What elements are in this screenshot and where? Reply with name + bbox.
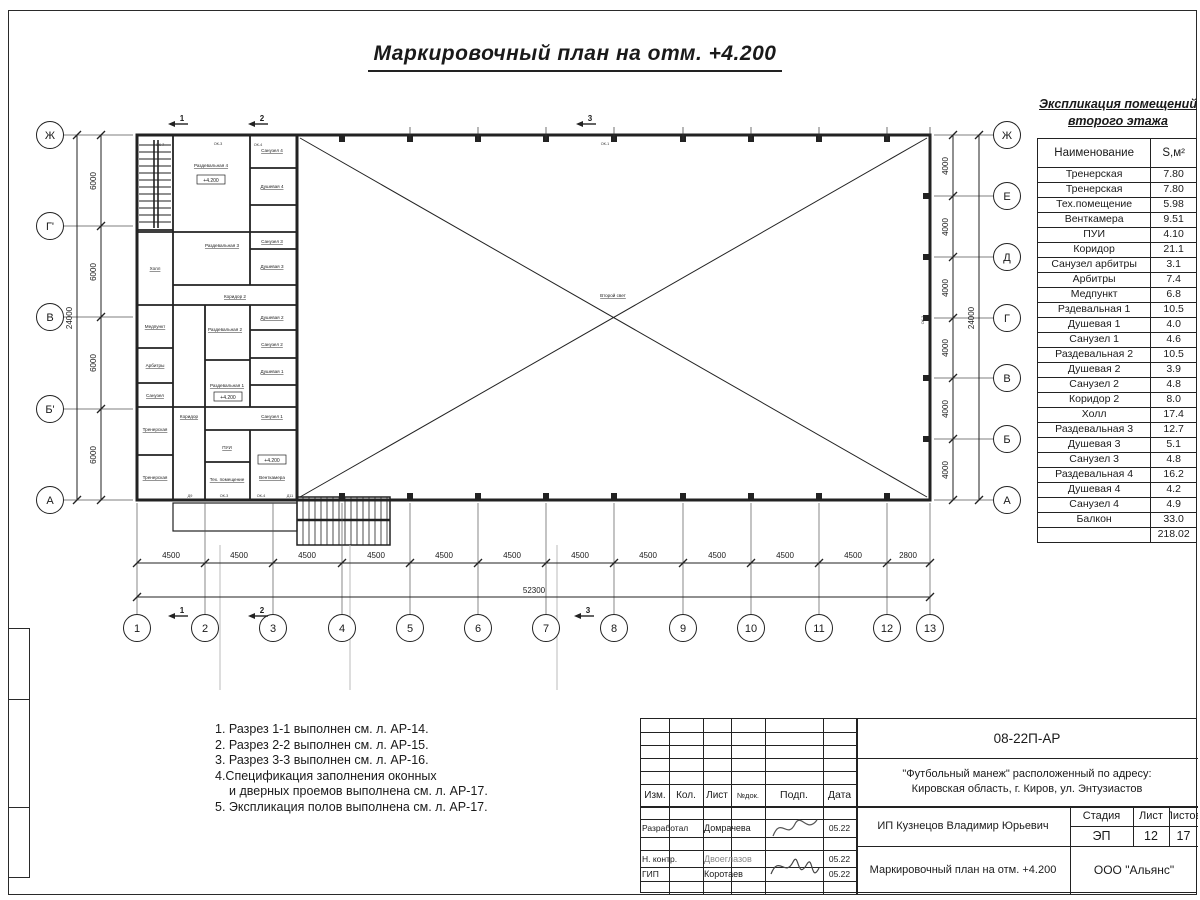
svg-text:4000: 4000 [941, 157, 950, 175]
room-label: Венткамера [259, 475, 285, 480]
svg-text:4500: 4500 [776, 551, 794, 560]
table-row: Балкон33.0 [1038, 512, 1197, 527]
room-label: Санузел 1 [261, 414, 283, 419]
svg-text:24000: 24000 [65, 306, 74, 329]
room-label: Душевая 2 [260, 315, 283, 320]
svg-text:12: 12 [881, 623, 893, 635]
svg-text:7: 7 [543, 623, 549, 635]
drawing-name: Маркировочный план на отм. +4.200 [856, 846, 1070, 894]
notes: 1. Разрез 1-1 выполнен см. л. АР-14. 2. … [215, 722, 488, 815]
stage-label: Стадия [1070, 806, 1133, 826]
room-label: Санузел 2 [261, 342, 283, 347]
svg-text:8: 8 [611, 623, 617, 635]
svg-text:Ж: Ж [1002, 130, 1012, 142]
svg-text:Г': Г' [46, 221, 54, 233]
col-kol: Кол. [669, 784, 703, 806]
svg-text:Б: Б [1003, 434, 1010, 446]
svg-text:4000: 4000 [941, 279, 950, 297]
room-label: Медпункт [145, 324, 166, 329]
svg-text:4000: 4000 [941, 218, 950, 236]
room-label: Тренерская [143, 475, 168, 480]
svg-text:6000: 6000 [89, 446, 98, 464]
stairwell [139, 140, 171, 228]
room-label: Коридор [180, 414, 199, 419]
title-block: Изм. Кол. Лист №док. Подп. Дата Разработ… [640, 718, 1197, 893]
svg-text:2: 2 [260, 606, 265, 615]
svg-text:3: 3 [586, 606, 591, 615]
note-line: 3. Разрез 3-3 выполнен см. л. АР-16. [215, 753, 488, 769]
svg-text:+4.200: +4.200 [220, 395, 236, 401]
room-label: Холл [150, 266, 161, 271]
svg-text:2800: 2800 [899, 551, 917, 560]
axis-circles-right: Ж Е Д Г В Б А [994, 122, 1021, 514]
table-row: Холл17.4 [1038, 407, 1197, 422]
room-label: Душевая 1 [260, 369, 283, 374]
col-podp: Подп. [765, 784, 823, 806]
drawing-sheet: Маркировочный план на отм. +4.200 [0, 0, 1200, 900]
room-label: Раздевальная 4 [194, 163, 229, 168]
svg-text:А: А [46, 495, 54, 507]
explication-title: Экспликация помещений второго этажа [1037, 96, 1199, 130]
window-tag: ОК-2 [921, 316, 925, 325]
svg-text:4500: 4500 [639, 551, 657, 560]
svg-text:4000: 4000 [941, 339, 950, 357]
table-row: Венткамера9.51 [1038, 212, 1197, 227]
table-row: Санузел 44.9 [1038, 497, 1197, 512]
svg-text:6: 6 [475, 623, 481, 635]
column-header-area: S,м² [1151, 138, 1197, 167]
room-label: Арбитры [146, 363, 165, 368]
room-label: Санузел [146, 393, 164, 398]
room-label: Тренерская [143, 427, 168, 432]
svg-text:Ж: Ж [45, 130, 55, 142]
svg-text:6000: 6000 [89, 354, 98, 372]
date-value: 05.22 [824, 819, 855, 837]
svg-text:4500: 4500 [844, 551, 862, 560]
svg-text:4500: 4500 [162, 551, 180, 560]
object-address: "Футбольный манеж" расположенный по адре… [856, 758, 1198, 806]
table-row: Тех.помещение5.98 [1038, 197, 1197, 212]
extension-lines [63, 127, 994, 614]
sheets-total: 17 [1169, 826, 1198, 846]
section-markers: 1 2 3 1 2 3 [168, 114, 596, 619]
sheet-label: Лист [1133, 806, 1169, 826]
svg-text:4: 4 [339, 623, 345, 635]
svg-text:4500: 4500 [298, 551, 316, 560]
company-name: ООО "Альянс" [1070, 846, 1198, 894]
axis-circles-left: Ж Г' В Б' А [37, 122, 64, 514]
svg-text:Д: Д [1003, 252, 1011, 264]
date-value: 05.22 [824, 850, 855, 867]
svg-text:2: 2 [260, 114, 265, 123]
table-row: ПУИ4.10 [1038, 227, 1197, 242]
svg-text:4500: 4500 [503, 551, 521, 560]
svg-text:Б': Б' [45, 404, 54, 416]
door-tag: Д11 [287, 494, 294, 498]
table-row: Коридор21.1 [1038, 242, 1197, 257]
room-label: Душевая 4 [260, 184, 283, 189]
svg-text:2: 2 [202, 623, 208, 635]
explication: Экспликация помещений второго этажа Наим… [1037, 96, 1199, 543]
stage-value: ЭП [1070, 826, 1133, 846]
svg-text:9: 9 [680, 623, 686, 635]
room-label: Коридор 2 [224, 294, 246, 299]
svg-text:1: 1 [134, 623, 140, 635]
room-label: ПУИ [222, 445, 232, 450]
person-name: Двоеглазов [704, 850, 764, 867]
svg-text:1: 1 [180, 606, 185, 615]
room-labels: Раздевальная 4 Санузел 4 Душевая 4 Разде… [143, 148, 627, 482]
svg-text:4000: 4000 [941, 400, 950, 418]
table-row: Раздевальная 416.2 [1038, 467, 1197, 482]
svg-text:52300: 52300 [523, 586, 546, 595]
svg-text:4500: 4500 [435, 551, 453, 560]
svg-text:4500: 4500 [708, 551, 726, 560]
svg-text:3: 3 [270, 623, 276, 635]
svg-text:3: 3 [588, 114, 593, 123]
svg-text:13: 13 [924, 623, 936, 635]
svg-text:4500: 4500 [230, 551, 248, 560]
table-row: Раздевальная 312.7 [1038, 422, 1197, 437]
svg-text:Г: Г [1004, 313, 1010, 325]
date-value: 05.22 [824, 867, 855, 881]
dimensions-left: 6000 6000 6000 6000 24000 [65, 131, 105, 504]
svg-text:+4.200: +4.200 [264, 458, 280, 464]
column-header-name: Наименование [1038, 138, 1151, 167]
note-line: 4.Спецификация заполнения оконных [215, 769, 488, 785]
column-marks [339, 135, 930, 500]
role-label: Н. контр. [642, 850, 702, 867]
svg-text:4000: 4000 [941, 461, 950, 479]
window-tag: ОК-3 [220, 494, 229, 498]
signature [767, 812, 823, 890]
window-tag: ОК-4 [254, 143, 263, 147]
note-line: и дверных проемов выполнена см. л. АР-17… [215, 784, 488, 800]
client-name: ИП Кузнецов Владимир Юрьевич [856, 806, 1070, 846]
room-label: Раздевальная 2 [208, 327, 243, 332]
table-row: Душевая 23.9 [1038, 362, 1197, 377]
svg-text:5: 5 [407, 623, 413, 635]
svg-text:10: 10 [745, 623, 757, 635]
role-label: ГИП [642, 867, 702, 881]
room-label: Санузел 4 [261, 148, 283, 153]
table-row: Тренерская7.80 [1038, 167, 1197, 182]
note-line: 5. Экспликация полов выполнена см. л. АР… [215, 800, 488, 816]
col-list: Лист [703, 784, 731, 806]
dimensions-bottom: 4500 4500 4500 4500 4500 4500 4500 4500 … [133, 551, 934, 601]
table-total-row: 218.02 [1038, 527, 1197, 542]
table-row: Коридор 28.0 [1038, 392, 1197, 407]
window-tag: ОК-1 [601, 142, 610, 146]
svg-text:11: 11 [813, 623, 824, 635]
table-row: Арбитры7.4 [1038, 272, 1197, 287]
note-line: 1. Разрез 1-1 выполнен см. л. АР-14. [215, 722, 488, 738]
table-row: Душевая 44.2 [1038, 482, 1197, 497]
second-light-label: Второй свет [600, 292, 627, 298]
table-row: Душевая 35.1 [1038, 437, 1197, 452]
table-row: Тренерская7.80 [1038, 182, 1197, 197]
axis-circles-bottom: 1 2 3 4 5 6 7 8 9 10 11 12 13 [124, 615, 944, 642]
room-label: Тех. помещение [210, 477, 245, 482]
table-row: Санузел 34.8 [1038, 452, 1197, 467]
window-tag: ОК-3 [214, 142, 223, 146]
svg-text:Е: Е [1003, 191, 1010, 203]
window-tag: ОК-7 [156, 143, 165, 147]
table-row: Санузел 14.6 [1038, 332, 1197, 347]
room-label: Раздевальная 1 [210, 383, 245, 388]
col-ndok: №док. [731, 784, 765, 806]
role-label: Разработал [642, 819, 702, 837]
room-label: Душевая 3 [260, 264, 283, 269]
svg-text:1: 1 [180, 114, 185, 123]
opening-tags: ОК-7 ОК-3 ОК-4 ОК-1 ОК-2 Д9 ОК-3 ОК-4 Д1… [156, 142, 925, 498]
svg-text:4500: 4500 [367, 551, 385, 560]
note-line: 2. Разрез 2-2 выполнен см. л. АР-15. [215, 738, 488, 754]
col-data: Дата [823, 784, 856, 806]
explication-table: Наименование S,м² Тренерская7.80 Тренерс… [1037, 138, 1197, 543]
window-tag: ОК-4 [257, 494, 266, 498]
svg-text:В: В [46, 312, 53, 324]
table-row: Душевая 14.0 [1038, 317, 1197, 332]
building-outline [137, 135, 930, 500]
balcony-stair [173, 497, 557, 690]
svg-text:А: А [1003, 495, 1011, 507]
table-row: Санузел арбитры3.1 [1038, 257, 1197, 272]
svg-text:6000: 6000 [89, 172, 98, 190]
door-tag: Д9 [188, 494, 193, 498]
sheet-number: 12 [1133, 826, 1169, 846]
svg-text:24000: 24000 [967, 306, 976, 329]
table-row: Раздевальная 210.5 [1038, 347, 1197, 362]
svg-text:4500: 4500 [571, 551, 589, 560]
person-name: Коротаев [704, 867, 764, 881]
table-row: Санузел 24.8 [1038, 377, 1197, 392]
table-row: Медпункт6.8 [1038, 287, 1197, 302]
col-izm: Изм. [641, 784, 669, 806]
doc-number: 08-22П-АР [856, 719, 1198, 758]
svg-text:+4.200: +4.200 [203, 178, 219, 184]
table-row: Рздевальная 110.5 [1038, 302, 1197, 317]
sheets-label: Листов [1169, 806, 1198, 826]
svg-text:В: В [1003, 373, 1010, 385]
room-label: Санузел 3 [261, 239, 283, 244]
dimensions-right: 4000 4000 4000 4000 4000 4000 24000 [941, 131, 983, 504]
room-label: Раздевальная 3 [205, 243, 240, 248]
svg-text:6000: 6000 [89, 263, 98, 281]
person-name: Домрачева [704, 819, 764, 837]
